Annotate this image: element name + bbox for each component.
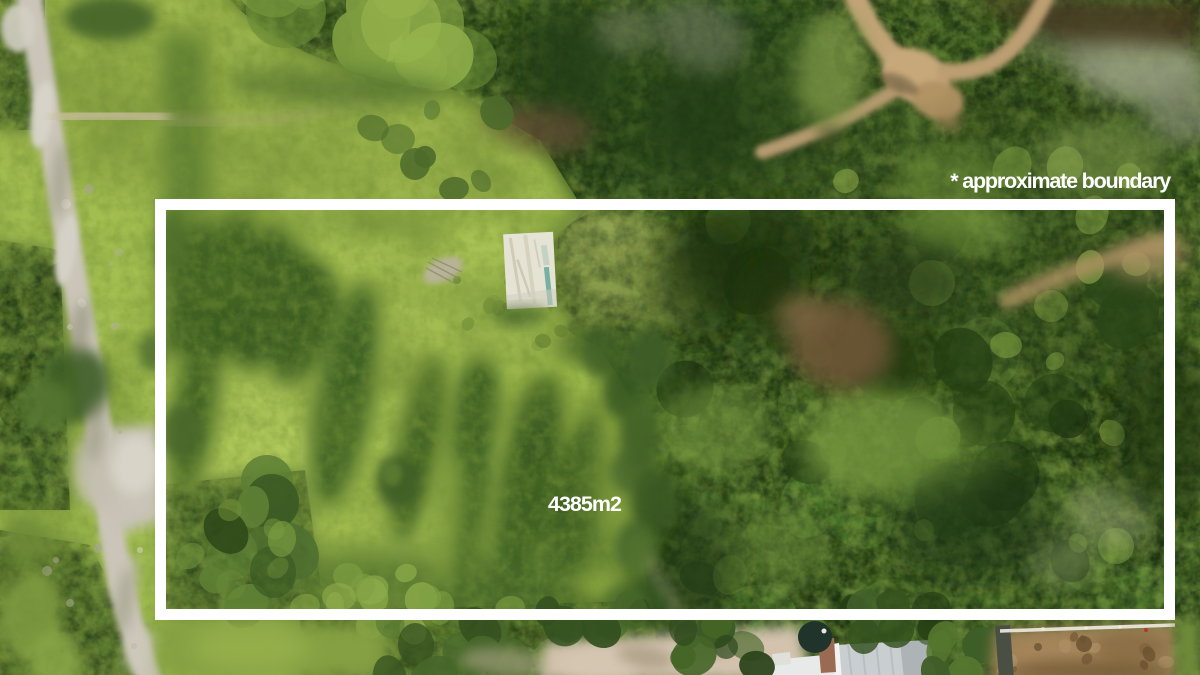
svg-text:* approximate boundary: * approximate boundary [950,169,1171,193]
svg-text:4385m2: 4385m2 [548,492,622,516]
